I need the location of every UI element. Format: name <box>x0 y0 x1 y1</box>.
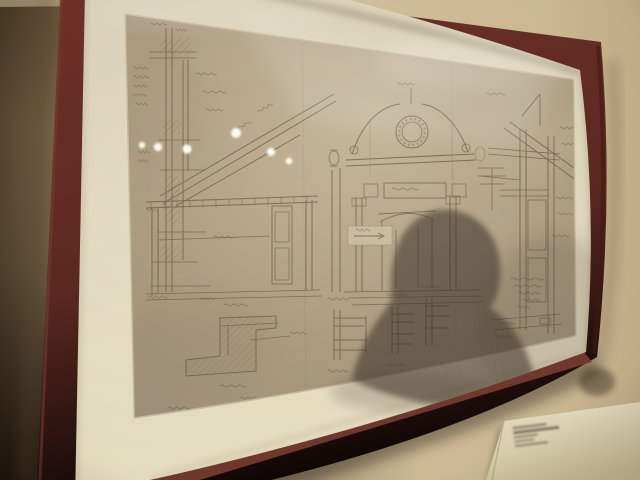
photo-vignette <box>0 0 640 480</box>
gallery-photo <box>0 0 640 480</box>
